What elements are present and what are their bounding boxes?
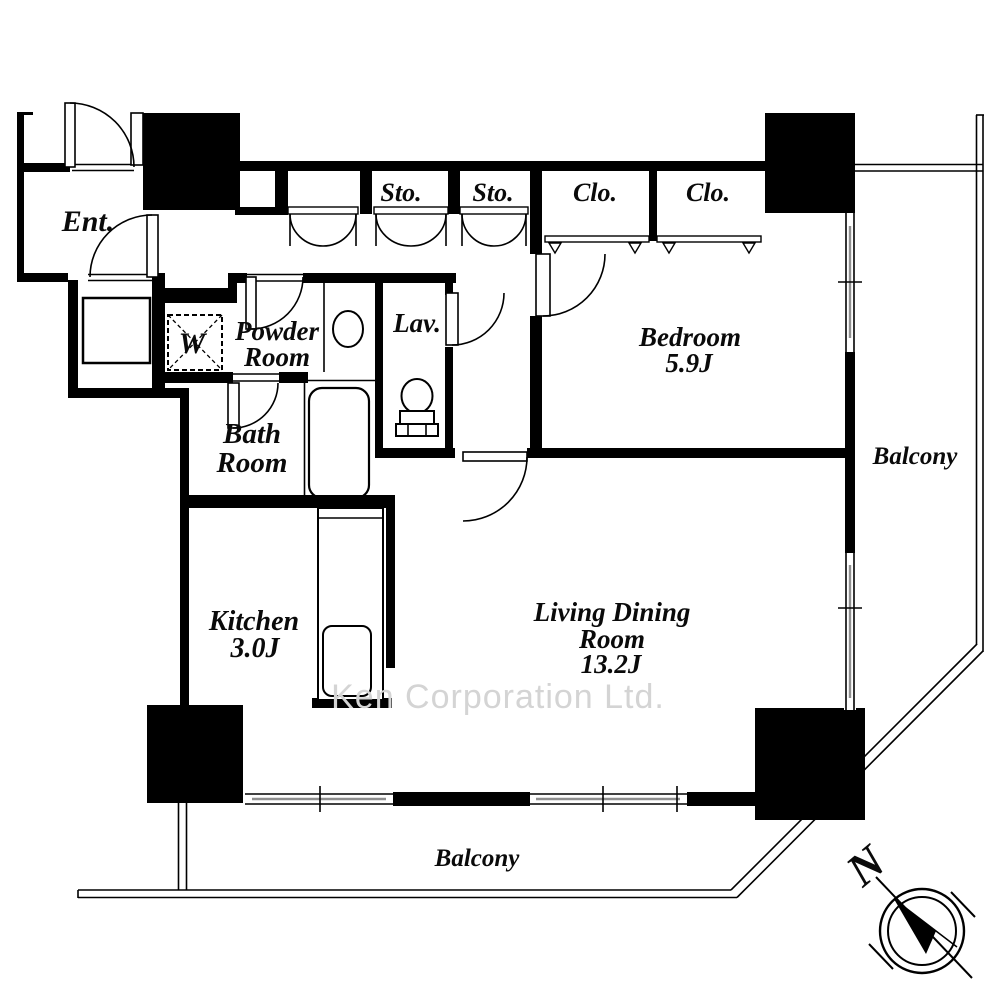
toilet [396,379,438,436]
kitchen-size: 3.0J [230,633,281,664]
compass [869,877,975,978]
washer-label: W [179,327,208,360]
bifold-sto-2 [460,207,528,246]
lav-label: Lav. [392,308,441,338]
ent-label: Ent. [61,205,115,238]
floorplan-page: Ent. Sto. Sto. Clo. Clo. Powder Room W L… [0,0,1000,1000]
wall-bedroom-left-upper [530,161,542,254]
wall-closet-divider [649,171,657,241]
living-size: 13.2J [581,649,643,679]
living-label-1: Living Dining [533,597,691,627]
wall-shoecloset-left [68,280,78,390]
wall-south-divider-east [527,448,847,458]
compass-needle [894,899,936,954]
storage-fronts [288,207,761,253]
bathtub [309,388,369,498]
wall-lav-left [375,283,383,448]
bath-label-2: Room [216,447,288,479]
bifold-hall-1 [288,207,358,246]
wall-top [240,161,765,171]
sto1-label: Sto. [380,178,421,207]
clo2-label: Clo. [686,178,730,207]
pillar-top-right [765,113,855,213]
bedroom-size: 5.9J [665,348,714,378]
wall-hall-bottom-b [303,273,456,283]
wall-shoecloset-bottom [68,388,189,398]
wall-bottom-a [393,792,530,806]
watermark: Ken Corporation Ltd. [331,678,665,716]
wall-powder-north-notch [165,288,230,303]
wall-kitchen-left [180,388,189,705]
shoe-cabinet [83,298,150,363]
living-door [455,448,527,521]
wall-bath-top-west [165,372,233,383]
balcony-bottom-label: Balcony [434,845,521,872]
powder-label-2: Room [243,342,310,372]
wall-ent-bottom [17,273,68,282]
living-window-bottom [530,786,687,812]
bifold-sto-1 [374,207,448,246]
clo1-label: Clo. [573,178,617,207]
closet-front-2 [657,236,761,253]
bedroom-window [838,213,862,352]
balcony-right-label: Balcony [872,443,959,470]
wall-sto-divider-3 [448,170,460,214]
living-window-right [838,553,862,710]
wall-counter-stub [386,508,395,668]
powder-sink [333,311,363,347]
wall-bedroom-left-lower [530,316,542,448]
wall-hall-bottom-a [228,273,247,283]
compass-n-label: N [836,834,896,896]
lav-door [446,293,504,345]
kitchen-window-bottom [245,786,393,812]
pillar-bottom-left [147,705,243,803]
closet-front-1 [545,236,649,253]
floorplan-drawing: Ent. Sto. Sto. Clo. Clo. Powder Room W L… [0,0,1000,1000]
pillar-bottom-right [755,708,865,820]
bath-label-1: Bath [222,418,281,450]
wall-sto-divider-1 [275,170,288,214]
wall-ent-top [24,163,70,172]
wall-bottom-b [687,792,755,806]
kitchen-counter [318,508,383,700]
wall-shoecloset-right [152,273,165,390]
bedroom-door [536,254,605,316]
wall-bath-top-east [279,372,308,383]
sto2-label: Sto. [472,178,513,207]
wall-south-divider-west [375,448,455,458]
pillar-top-left [143,113,240,210]
wall-left-upper [17,112,24,282]
wall-lav-right-lower [445,347,453,448]
wall-sto-divider-2 [360,170,372,214]
entrance-door [65,103,143,172]
